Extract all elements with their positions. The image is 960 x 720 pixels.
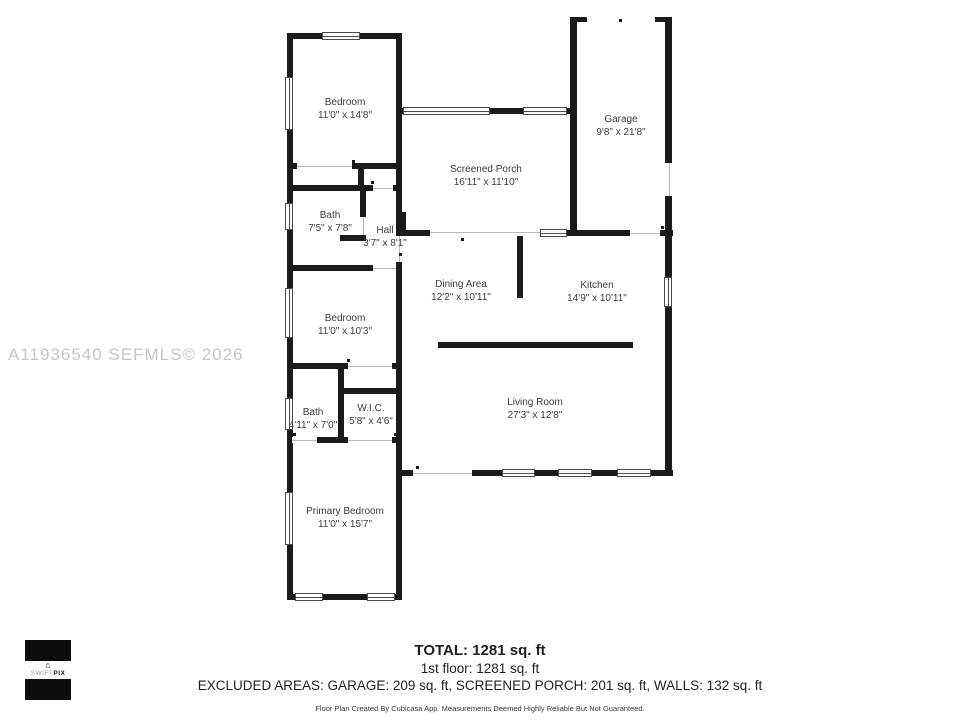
marker-dot [352,160,355,163]
room-label-primary-bedroom: Primary Bedroom 11'0" x 15'7" [306,505,384,531]
room-dimensions: 14'9" x 10'11" [567,292,627,305]
room-label-living-room: Living Room 27'3" x 12'8" [507,396,563,422]
window [285,203,293,230]
room-dimensions: 12'2" x 10'11" [431,291,491,304]
room-label-garage: Garage 9'8" x 21'8" [596,113,645,139]
logo-brand: ⌂ SWIFTPIX [25,661,71,679]
window [558,469,592,477]
mls-watermark: A11936540 SEFMLS© 2026 [8,345,244,365]
room-name: Kitchen [567,279,627,292]
room-dimensions: 27'3" x 12'8" [507,409,563,422]
window [403,107,490,115]
room-name: Living Room [507,396,563,409]
wall [396,262,402,600]
marker-dot [461,238,464,241]
garage-door-jamb [577,17,587,22]
front-door-opening [413,470,472,476]
window [322,32,360,40]
room-dimensions: 4'11" x 7'0" [289,419,338,432]
room-dimensions: 5'8" x 4'6" [349,415,393,428]
window [502,469,535,477]
room-name: Bath [289,406,338,419]
room-dimensions: 7'5" x 7'8" [308,222,352,235]
window [664,277,672,307]
room-label-kitchen: Kitchen 14'9" x 10'11" [567,279,627,305]
window [285,77,293,130]
wall [343,388,402,394]
room-label-bedroom-1: Bedroom 11'0" x 14'8" [318,96,372,122]
marker-dot [394,433,397,436]
floor-plan: A11936540 SEFMLS© 2026 [0,0,960,720]
room-dimensions: 16'11" x 11'10" [450,176,522,189]
opening-threshold [430,232,540,233]
door-opening [373,265,396,271]
room-dimensions: 11'0" x 14'8" [318,109,372,122]
door-opening [348,363,392,369]
room-name: Bedroom [318,96,372,109]
window [617,469,651,477]
marker-dot [293,433,296,436]
marker-dot [661,226,664,229]
wall [665,236,672,476]
wall [438,342,633,348]
room-name: Hall [363,224,407,237]
door-opening [292,437,317,443]
room-name: Bedroom [318,312,372,325]
door-opening [373,185,393,191]
total-area: TOTAL: 1281 sq. ft [0,642,960,661]
swiftpix-logo: ⌂ SWIFTPIX [25,640,71,700]
wall [570,17,577,236]
room-label-screened-porch: Screened Porch 16'11" x 11'10" [450,163,522,189]
house-icon: ⌂ [25,661,71,670]
marker-dot [399,253,402,256]
door-opening [297,163,352,169]
marker-dot [416,466,419,469]
room-label-bedroom-2: Bedroom 11'0" x 10'3" [318,312,372,338]
marker-dot [619,19,622,22]
marker-dot [371,181,374,184]
room-label-bath-1: Bath 7'5" x 7'8" [308,209,352,235]
wall [517,236,523,298]
window [540,229,567,237]
garage-door-jamb [655,17,665,22]
room-label-wic: W.I.C. 5'8" x 4'6" [349,402,393,428]
wall [340,235,366,241]
room-dimensions: 11'0" x 15'7" [306,518,384,531]
room-label-dining-area: Dining Area 12'2" x 10'11" [431,278,491,304]
logo-block-bottom [25,679,71,700]
logo-block-top [25,640,71,661]
window [285,288,293,338]
excluded-areas: EXCLUDED AREAS: GARAGE: 209 sq. ft, SCRE… [0,678,960,695]
room-dimensions: 9'8" x 21'8" [596,126,645,139]
wall [338,363,344,443]
room-name: Garage [596,113,645,126]
window [523,107,567,115]
window [295,593,323,601]
door-opening [665,163,672,196]
marker-dot [347,359,350,362]
room-name: Dining Area [431,278,491,291]
wall [665,17,672,236]
room-label-bath-2: Bath 4'11" x 7'0" [289,406,338,432]
area-summary: TOTAL: 1281 sq. ft 1st floor: 1281 sq. f… [0,642,960,713]
room-name: Primary Bedroom [306,505,384,518]
room-name: Bath [308,209,352,222]
first-floor-area: 1st floor: 1281 sq. ft [0,661,960,678]
room-label-hall: Hall 3'7" x 8'1" [363,224,407,250]
room-name: W.I.C. [349,402,393,415]
window [367,593,395,601]
wall [360,191,366,217]
door-opening [630,230,660,236]
room-name: Screened Porch [450,163,522,176]
brand-text: SWIFTPIX [25,670,71,678]
window [285,492,293,545]
room-dimensions: 3'7" x 8'1" [363,237,407,250]
door-opening [348,437,392,443]
room-dimensions: 11'0" x 10'3" [318,325,372,338]
disclaimer: Floor Plan Created By Cubicasa App. Meas… [0,704,960,713]
